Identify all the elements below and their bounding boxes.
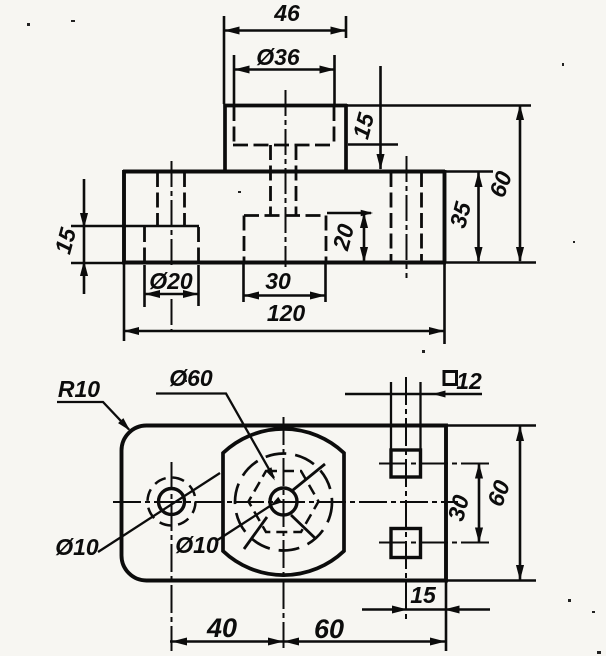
svg-text:120: 120 (267, 300, 306, 326)
svg-text:60: 60 (482, 477, 515, 510)
svg-text:15: 15 (49, 224, 81, 257)
svg-text:35: 35 (444, 198, 476, 231)
svg-text:Ø36: Ø36 (256, 44, 300, 70)
svg-text:Ø10: Ø10 (175, 532, 219, 558)
svg-text:46: 46 (273, 0, 300, 26)
svg-text:40: 40 (206, 613, 237, 643)
svg-text:12: 12 (456, 368, 482, 394)
svg-text:60: 60 (314, 614, 344, 644)
svg-text:30: 30 (265, 268, 291, 294)
svg-text:Ø60: Ø60 (169, 365, 213, 391)
svg-text:30: 30 (442, 492, 474, 524)
svg-text:Ø20: Ø20 (149, 268, 193, 294)
svg-text:15: 15 (410, 582, 437, 608)
svg-text:Ø10: Ø10 (55, 534, 99, 560)
svg-text:R10: R10 (58, 376, 100, 402)
svg-text:15: 15 (347, 109, 379, 142)
svg-text:20: 20 (327, 221, 359, 254)
